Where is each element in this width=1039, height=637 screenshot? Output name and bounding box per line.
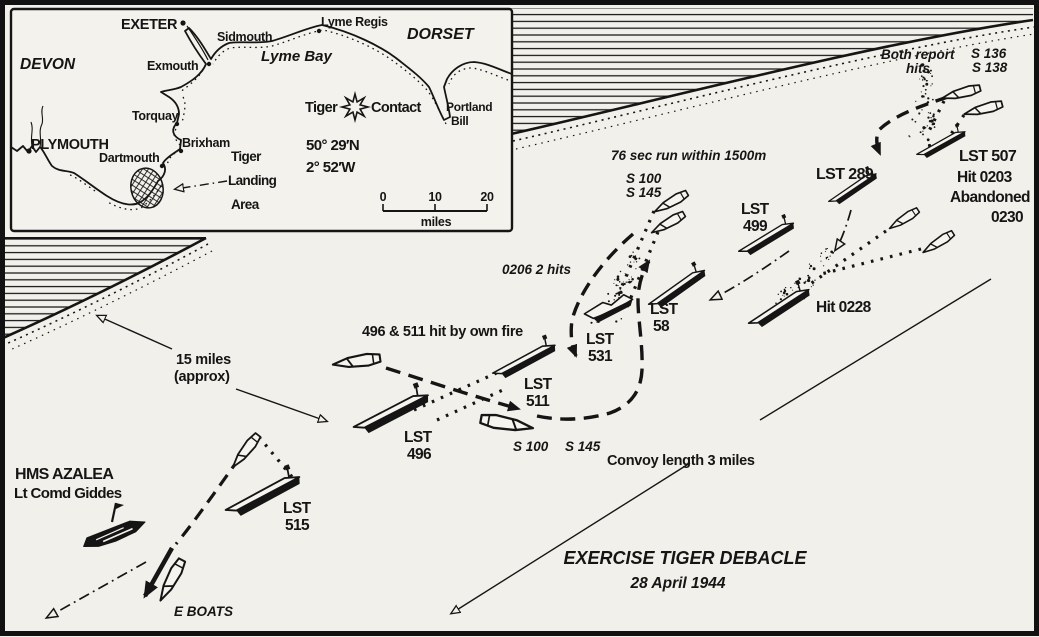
note-15miles-1: 15 miles <box>176 352 231 368</box>
smoke-dot <box>919 78 920 79</box>
smoke-dot <box>632 252 633 253</box>
label-eboats: E BOATS <box>174 604 233 619</box>
smoke-dot <box>809 268 811 270</box>
smoke-dot <box>808 276 811 279</box>
eboat-s136 <box>941 83 981 102</box>
smoke-dot <box>784 296 785 297</box>
smoke-dot <box>925 127 926 128</box>
smoke-dot <box>614 279 615 280</box>
smoke-dot <box>614 299 615 300</box>
label-portland-2: Bill <box>451 114 468 128</box>
smoke-dot <box>820 256 821 257</box>
smoke-dot <box>930 70 932 72</box>
scale-label-0: 0 <box>380 190 387 204</box>
label-landing-2: Landing <box>228 173 277 188</box>
smoke-dot <box>934 126 936 128</box>
smoke-dot <box>626 274 627 275</box>
label-lst531-2: 531 <box>588 348 613 365</box>
note-torpedo-run: 76 sec run within 1500m <box>611 148 766 163</box>
smoke-dot <box>827 256 829 258</box>
smoke-dot <box>930 73 931 74</box>
smoke-dot <box>922 133 924 135</box>
smoke-dot <box>825 248 827 250</box>
lst-289-hit-position-ship <box>741 278 814 332</box>
smoke-dot <box>918 112 920 114</box>
smoke-dot <box>926 80 928 82</box>
smoke-dot <box>627 264 628 265</box>
smoke-dot <box>615 284 617 286</box>
label-lst58-1: LST <box>650 301 679 318</box>
smoke-dot <box>932 123 934 125</box>
label-s100-south: S 100 <box>513 439 549 454</box>
smoke-dot <box>927 116 929 118</box>
smoke-dot <box>615 293 617 295</box>
map-title: EXERCISE TIGER DEBACLE <box>563 548 807 568</box>
smoke-dot <box>927 125 928 126</box>
smoke-dot <box>794 283 795 284</box>
label-lyme-bay: Lyme Bay <box>261 48 333 65</box>
smoke-dot <box>635 255 637 257</box>
smoke-dot <box>630 261 631 262</box>
smoke-dot <box>621 318 623 320</box>
smoke-dot <box>813 284 814 285</box>
scale-label-10: 10 <box>428 190 442 204</box>
measure-15miles-convoy <box>236 389 326 421</box>
smoke-dot <box>915 121 917 123</box>
torpedo-track-0228a <box>806 231 886 287</box>
map-date: 28 April 1944 <box>629 575 725 592</box>
label-lst507-hit: Hit 0203 <box>957 169 1013 186</box>
note-convoy-length: Convoy length 3 miles <box>607 453 755 469</box>
smoke-dot <box>614 295 616 297</box>
smoke-dot <box>623 282 624 283</box>
label-lst507-status: Abandoned <box>950 189 1030 206</box>
torpedo-track-0228b <box>821 249 921 274</box>
label-s100-north: S 100 <box>626 171 662 186</box>
smoke-dot <box>931 83 932 84</box>
course-lst499 <box>712 251 789 299</box>
contact-star-icon <box>342 94 368 120</box>
eboat-east-1 <box>887 206 920 232</box>
label-portland-1: Portland <box>446 100 492 114</box>
smoke-dot <box>921 109 922 110</box>
label-lst511-1: LST <box>524 376 553 393</box>
smoke-dot <box>927 97 929 99</box>
smoke-dot <box>908 135 909 136</box>
smoke-dot <box>825 251 826 252</box>
dot-lyme-regis <box>317 29 321 33</box>
smoke-dot <box>786 293 789 296</box>
azalea-flag <box>116 503 124 509</box>
smoke-dot <box>821 252 823 254</box>
smoke-dot <box>925 83 928 86</box>
eboat-east-2 <box>921 229 956 256</box>
smoke-dot <box>620 271 621 272</box>
course-lst289 <box>836 210 851 249</box>
smoke-dot <box>631 281 633 283</box>
smoke-dot <box>799 277 800 278</box>
label-lst507: LST 507 <box>959 148 1017 165</box>
smoke-dot <box>924 78 926 80</box>
label-lst515-2: 515 <box>285 517 310 534</box>
smoke-dot <box>615 320 617 322</box>
label-lst511-2: 511 <box>526 393 550 410</box>
smoke-dot <box>810 265 812 267</box>
smoke-dot <box>921 91 922 92</box>
label-brixham: Brixham <box>182 136 230 150</box>
smoke-dot <box>617 275 620 278</box>
eboat-s100-south <box>480 413 534 435</box>
smoke-dot <box>813 267 816 270</box>
smoke-dot <box>631 276 632 277</box>
smoke-dot <box>785 287 786 288</box>
dot-exeter <box>180 20 185 25</box>
smoke-dot <box>607 293 609 295</box>
smoke-dot <box>629 279 630 280</box>
smoke-dot <box>928 112 929 113</box>
label-landing-1: Tiger <box>231 149 262 164</box>
smoke-dot <box>930 85 931 86</box>
label-latitude: 50° 29′N <box>306 137 359 154</box>
label-torquay: Torquay <box>132 109 179 123</box>
smoke-dot <box>925 93 927 95</box>
smoke-dot <box>929 120 931 122</box>
label-landing-3: Area <box>231 197 260 212</box>
lst-531-wreck <box>582 293 635 324</box>
smoke-dot <box>782 295 783 296</box>
smoke-dot <box>932 115 934 117</box>
label-lst499-1: LST <box>741 201 770 218</box>
smoke-dot <box>827 248 828 249</box>
label-lst499-2: 499 <box>743 218 768 235</box>
smoke-dot <box>778 294 779 295</box>
label-tiger-contact-2: Contact <box>371 100 422 116</box>
smoke-dot <box>590 322 592 324</box>
smoke-dot <box>619 281 621 283</box>
smoke-dot <box>626 282 627 283</box>
note-own-fire: 496 & 511 hit by own fire <box>362 324 523 340</box>
smoke-dot <box>925 89 927 91</box>
scale-label-unit: miles <box>421 215 452 229</box>
smoke-dot <box>807 275 808 276</box>
label-exeter: EXETER <box>121 17 178 33</box>
smoke-dot <box>618 294 620 296</box>
smoke-dot <box>631 278 634 281</box>
label-exmouth: Exmouth <box>147 59 198 73</box>
smoke-dot <box>811 286 812 287</box>
course-azalea <box>48 562 146 617</box>
smoke-dot <box>619 287 620 288</box>
smoke-dot <box>628 281 631 284</box>
label-lyme-regis: Lyme Regis <box>321 15 388 29</box>
smoke-dot <box>923 128 924 129</box>
note-15miles-2: (approx) <box>174 369 230 385</box>
smoke-dot <box>780 290 782 292</box>
smoke-dot <box>622 293 623 294</box>
dot-dartmouth <box>160 164 164 168</box>
eboat-escaping <box>155 557 187 603</box>
label-s145-north: S 145 <box>626 185 662 200</box>
smoke-dot <box>911 118 913 120</box>
smoke-dot <box>828 259 829 260</box>
label-s138: S 138 <box>972 60 1008 75</box>
smoke-dot <box>613 283 614 284</box>
label-hms-azalea: HMS AZALEA <box>15 466 114 483</box>
smoke-dot <box>930 117 931 118</box>
smoke-dot <box>805 281 806 282</box>
smoke-dot <box>617 285 618 286</box>
label-lst496-1: LST <box>404 429 433 446</box>
smoke-dot <box>814 280 815 281</box>
eboat-near-515 <box>229 432 262 470</box>
smoke-dot <box>920 131 922 133</box>
smoke-dot <box>931 75 933 77</box>
label-azalea-commander: Lt Comd Giddes <box>14 485 122 502</box>
smoke-dot <box>922 85 924 87</box>
label-lst496-2: 496 <box>407 446 432 463</box>
lst-511-ship <box>487 333 560 382</box>
note-both-report-1: Both report <box>881 47 955 62</box>
smoke-dot <box>830 251 833 254</box>
label-lst515-1: LST <box>283 500 312 517</box>
label-plymouth: PLYMOUTH <box>31 137 109 153</box>
note-both-report-2: hits <box>906 61 930 76</box>
smoke-dot <box>636 261 637 262</box>
label-s136: S 136 <box>971 46 1007 61</box>
label-s145-south: S 145 <box>565 439 601 454</box>
smoke-dot <box>929 112 931 114</box>
smoke-dot <box>784 290 786 292</box>
inset-map: DEVON DORSET Lyme Bay EXETER Sidmouth Ly… <box>11 9 512 231</box>
smoke-dot <box>608 300 610 302</box>
label-sidmouth: Sidmouth <box>217 30 272 44</box>
eboat-west-cigar <box>332 352 381 370</box>
smoke-dot <box>823 265 824 266</box>
exercise-tiger-map: Both report S 136 hits S 138 LST 507 Hit… <box>0 0 1039 637</box>
smoke-dot <box>809 263 810 264</box>
eboat-s138 <box>963 99 1003 118</box>
scale-label-20: 20 <box>480 190 494 204</box>
smoke-dot <box>927 138 930 141</box>
smoke-dot <box>638 257 640 259</box>
note-0206-hits: 0206 2 hits <box>502 262 572 277</box>
azalea-mast <box>112 503 116 522</box>
eboat-s145-north <box>649 210 686 237</box>
smoke-dot <box>631 255 633 257</box>
torpedo-track-507a <box>929 101 944 131</box>
hms-azalea-ship <box>81 516 148 552</box>
label-lst507-time: 0230 <box>991 209 1023 226</box>
smoke-dot <box>921 95 924 98</box>
torpedo-track-531b <box>627 232 658 307</box>
smoke-dot <box>625 273 626 274</box>
label-tiger-contact-1: Tiger <box>305 100 338 116</box>
smoke-dot <box>922 79 924 81</box>
smoke-dot <box>915 101 916 102</box>
map-canvas: Both report S 136 hits S 138 LST 507 Hit… <box>0 0 1039 637</box>
label-lst531-1: LST <box>586 331 615 348</box>
smoke-dot <box>616 278 619 281</box>
smoke-dot <box>624 283 626 285</box>
smoke-dot <box>636 258 637 259</box>
label-longitude: 2° 52′W <box>306 159 356 176</box>
smoke-dot <box>820 261 821 262</box>
dot-exmouth <box>207 62 211 66</box>
label-lst58-2: 58 <box>653 318 670 335</box>
label-hit0228: Hit 0228 <box>816 299 872 316</box>
smoke-dot <box>628 274 629 275</box>
label-dorset: DORSET <box>407 26 475 43</box>
smoke-dot <box>627 281 628 282</box>
label-devon: DEVON <box>20 56 76 73</box>
smoke-dot <box>790 287 791 288</box>
smoke-dot <box>933 113 935 115</box>
smoke-dot <box>922 131 923 132</box>
measure-15miles-shore <box>98 316 172 349</box>
smoke-dot <box>932 99 934 101</box>
smoke-dot <box>927 101 929 103</box>
smoke-dot <box>830 256 831 257</box>
smoke-dot <box>792 290 793 291</box>
smoke-dot <box>633 261 634 262</box>
smoke-dot <box>807 279 810 282</box>
label-dartmouth: Dartmouth <box>99 151 160 165</box>
smoke-dot <box>635 268 636 269</box>
label-lst289: LST 289 <box>816 166 874 183</box>
smoke-dot <box>780 298 782 300</box>
smoke-dot <box>619 291 622 294</box>
